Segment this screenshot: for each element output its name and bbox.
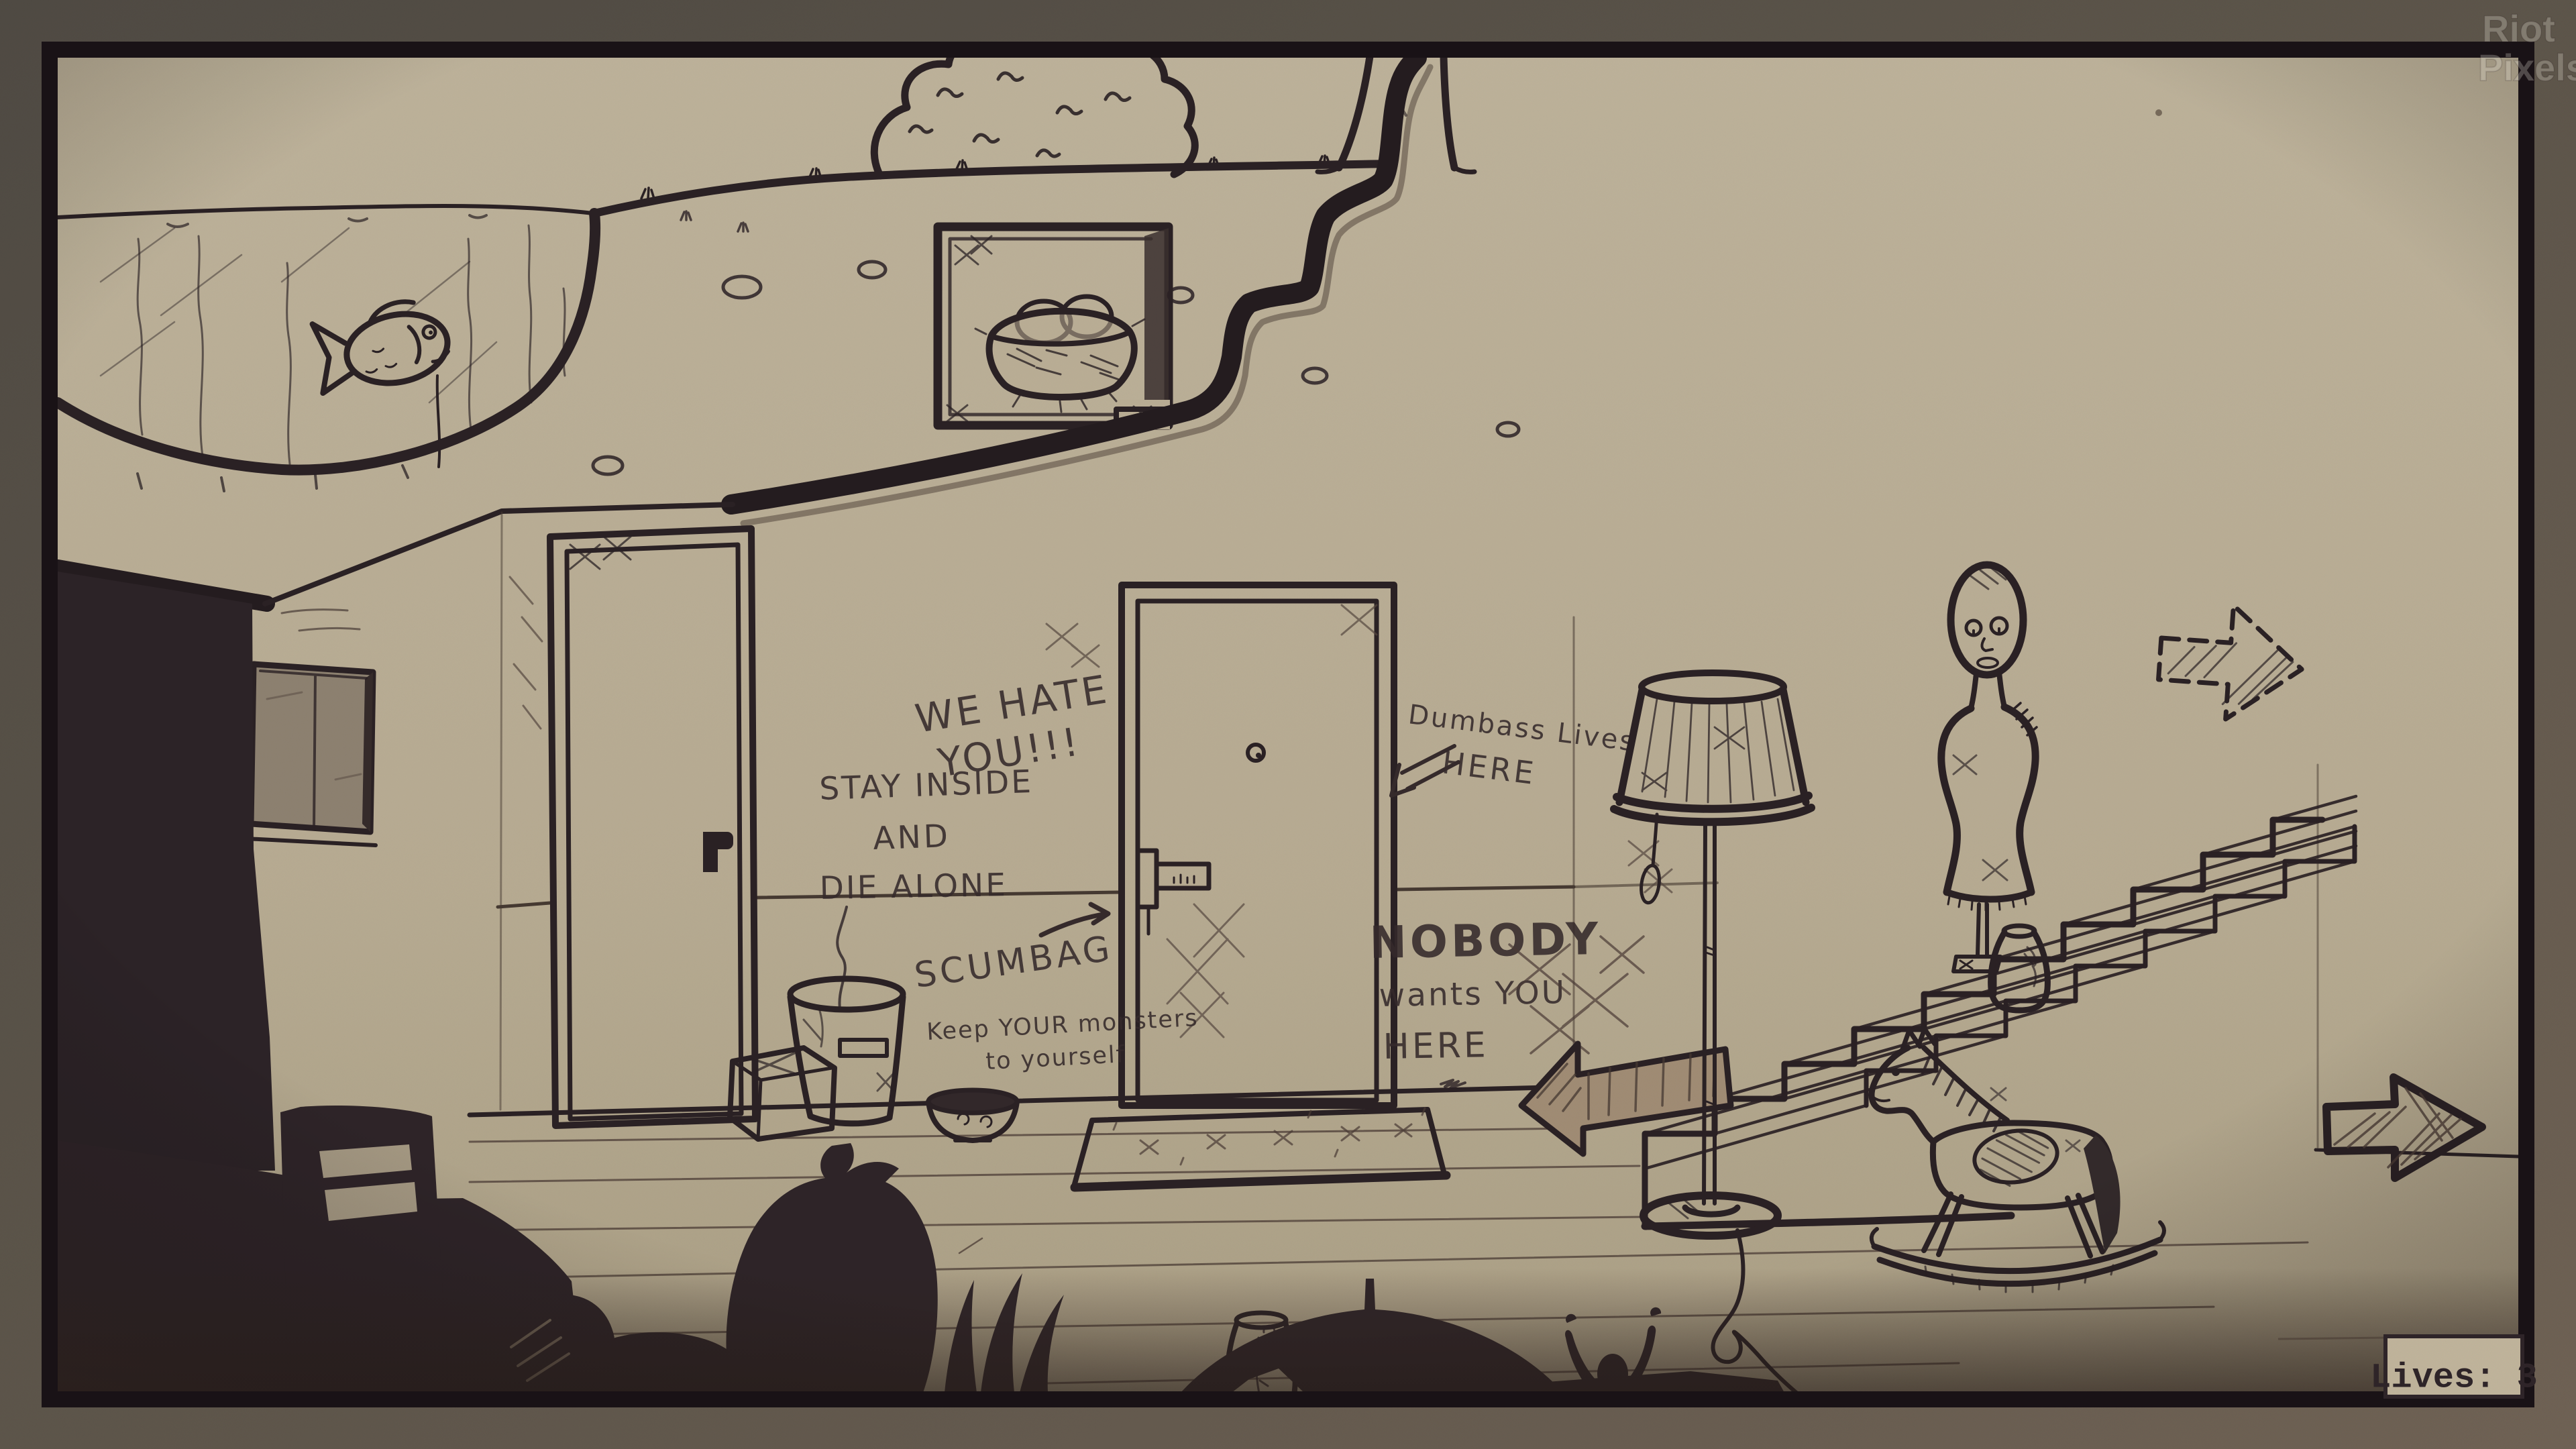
svg-text:Pixels: Pixels	[2478, 46, 2576, 89]
game-screen: WE HATE YOU!!! STAY INSIDE AND DIE ALONE…	[0, 0, 2576, 1449]
film-grain	[0, 0, 2576, 1449]
svg-text:Riot: Riot	[2482, 7, 2555, 50]
